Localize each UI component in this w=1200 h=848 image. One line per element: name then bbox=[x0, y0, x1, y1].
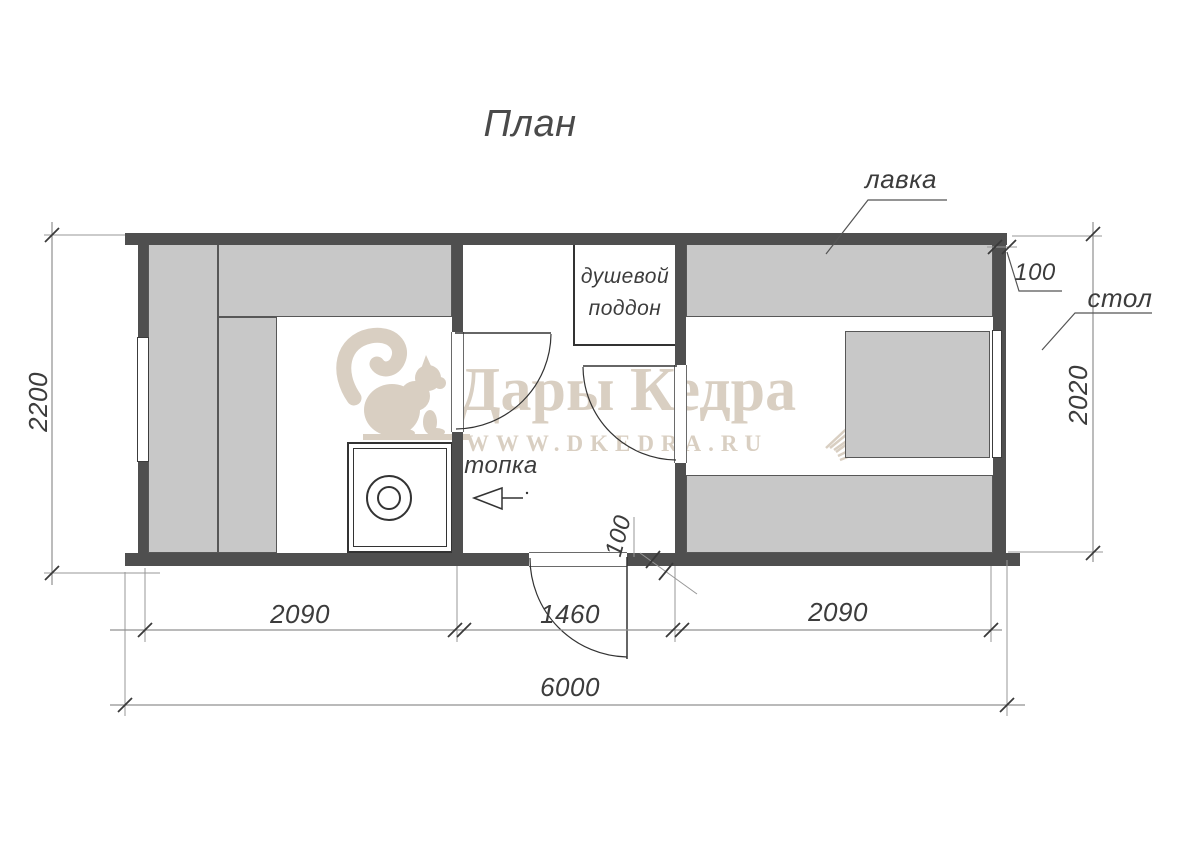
bench-leader bbox=[826, 200, 947, 254]
dim-right-room-width: 2090 bbox=[788, 597, 888, 628]
floor-plan-canvas: План Дары Кедра WWW.DKEDRA.RU душевой bbox=[0, 0, 1200, 848]
dim-right-height: 2020 bbox=[1064, 335, 1092, 455]
plan-title: План bbox=[445, 103, 615, 146]
table-leader bbox=[1042, 313, 1152, 350]
extension-lines bbox=[44, 235, 1103, 716]
dim-wall-top-right: 100 bbox=[1005, 259, 1065, 287]
dimension-lines bbox=[52, 222, 1093, 705]
dim-total-width: 6000 bbox=[520, 672, 620, 703]
bench-label: лавка bbox=[845, 164, 957, 195]
door-arc-sauna bbox=[456, 334, 551, 429]
table-label: стол bbox=[1078, 283, 1162, 314]
firebox-label: топка bbox=[455, 452, 547, 480]
dim-left-height: 2200 bbox=[24, 342, 52, 462]
leader-lines bbox=[826, 200, 1152, 350]
dim-middle-room-width: 1460 bbox=[520, 599, 620, 630]
firebox-arrow-icon bbox=[474, 488, 528, 509]
door-arc-steam bbox=[583, 367, 676, 460]
dim-left-room-width: 2090 bbox=[250, 599, 350, 630]
